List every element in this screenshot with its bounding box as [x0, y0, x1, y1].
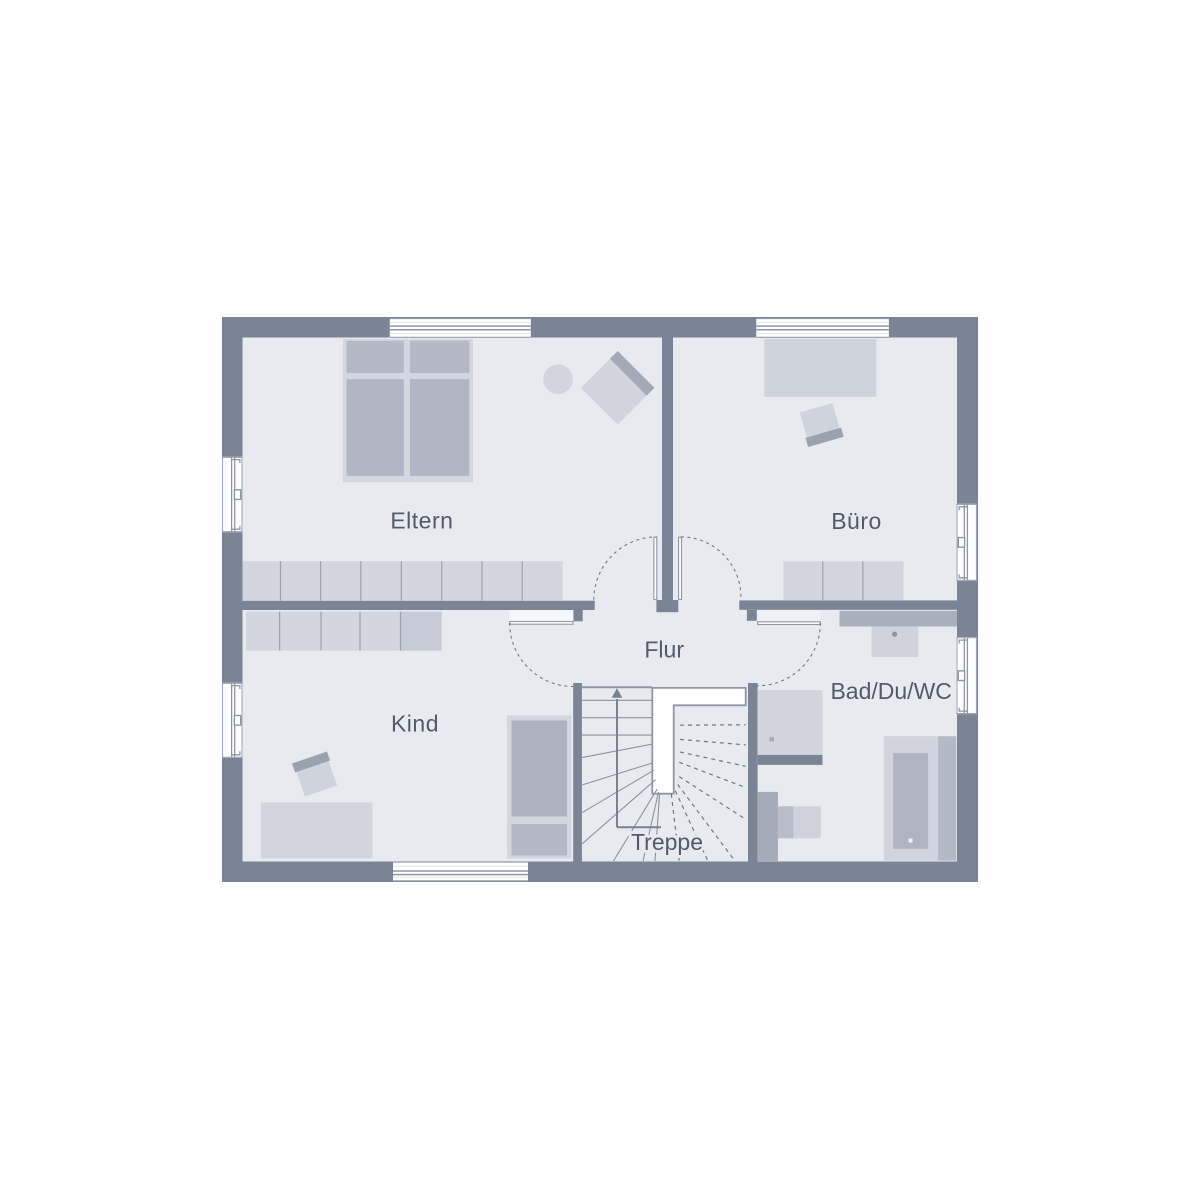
- svg-text:Büro: Büro: [831, 508, 882, 534]
- svg-text:Kind: Kind: [391, 711, 439, 737]
- svg-text:Bad/Du/WC: Bad/Du/WC: [830, 678, 951, 704]
- svg-text:Flur: Flur: [644, 637, 684, 663]
- svg-text:Treppe: Treppe: [631, 829, 703, 855]
- svg-text:Eltern: Eltern: [390, 508, 453, 534]
